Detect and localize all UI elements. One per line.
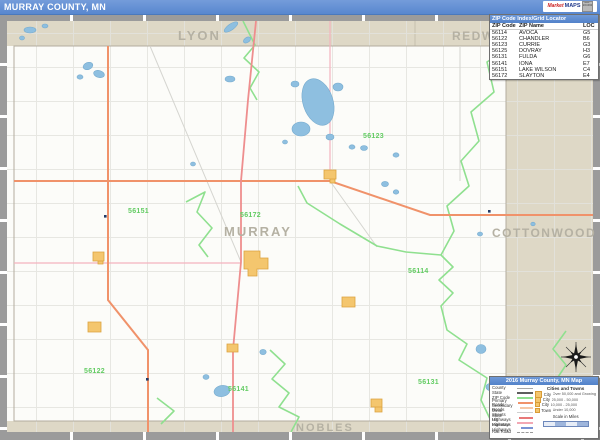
interstate-swatch: [521, 427, 533, 429]
county-label-lyon: LYON: [178, 28, 221, 43]
marketmaps-logo: Market MAPS MAP SOURCE: [543, 1, 597, 12]
zip-cell: SLAYTON: [519, 73, 583, 79]
county-line-swatch: [517, 388, 533, 389]
zip-label-56151: 56151: [128, 208, 149, 215]
logo-maps-text: MAPS: [565, 4, 581, 10]
zip-label-56114: 56114: [408, 268, 429, 275]
logo-badge: MAP SOURCE: [582, 1, 593, 12]
page-title: MURRAY COUNTY, MN: [4, 0, 106, 14]
scale-bar: [543, 421, 589, 427]
col-loc: LOC: [583, 23, 598, 29]
town-square: [535, 408, 540, 413]
zip-table-row: 56172 SLAYTON E4: [490, 73, 598, 79]
zip-label-56123: 56123: [363, 133, 384, 140]
zip-label-56131: 56131: [418, 379, 439, 386]
col-zip-name: ZIP Name: [519, 23, 583, 29]
city-iona: [227, 344, 238, 352]
zip-cell: 56172: [490, 73, 519, 79]
col-zip-code: ZIP Code: [490, 23, 519, 29]
legend-cities-column: Cities and Towns City Over 50,000 and Gr…: [533, 386, 596, 435]
primary-roads-swatch: [518, 402, 533, 404]
city-chandler: [88, 322, 101, 332]
title-bar: MURRAY COUNTY, MN Market MAPS MAP SOURCE: [0, 0, 600, 15]
scale-label: Scale in Miles: [535, 415, 596, 420]
county-label-murray: MURRAY: [224, 224, 292, 239]
state-line-swatch: [517, 392, 533, 394]
railroad-swatch: [517, 432, 533, 433]
secondary-roads-swatch: [520, 407, 533, 409]
zip-label-56141: 56141: [228, 386, 249, 393]
city-size-item: City Over 50,000 and Growing: [535, 392, 596, 397]
map-frame-left: [0, 14, 7, 440]
zip-table-header: ZIP Code Index/Grid Locator: [490, 15, 598, 23]
zip-line-swatch: [517, 397, 533, 399]
legend-line-items: County State ZIP Code Primary Roads Seco…: [492, 386, 533, 435]
zip-label-56172: 56172: [240, 212, 261, 219]
zip-cell: E4: [583, 73, 598, 79]
logo-market-text: Market: [547, 4, 563, 9]
city-avoca: [342, 297, 355, 307]
zip-label-56122: 56122: [84, 368, 105, 375]
county-label-nobles: NOBLES: [296, 422, 354, 434]
map-legend: 2016 Murray County, MN Map County State …: [489, 376, 599, 439]
zip-index-table: ZIP Code Index/Grid Locator ZIP Code ZIP…: [489, 14, 599, 80]
zip-table-column-row: ZIP Code ZIP Name LOC: [490, 23, 598, 30]
county-label-cottonwood: COTTONWOOD: [492, 226, 596, 240]
legend-header: 2016 Murray County, MN Map: [490, 377, 598, 385]
map-viewer: MURRAY COUNTY, MN Market MAPS MAP SOURCE…: [0, 0, 600, 440]
state-highways-swatch: [519, 417, 533, 419]
city-square-small: [535, 402, 540, 407]
minor-streets-swatch: [517, 412, 533, 413]
city-size-item: Town Under 10,000: [535, 408, 596, 413]
